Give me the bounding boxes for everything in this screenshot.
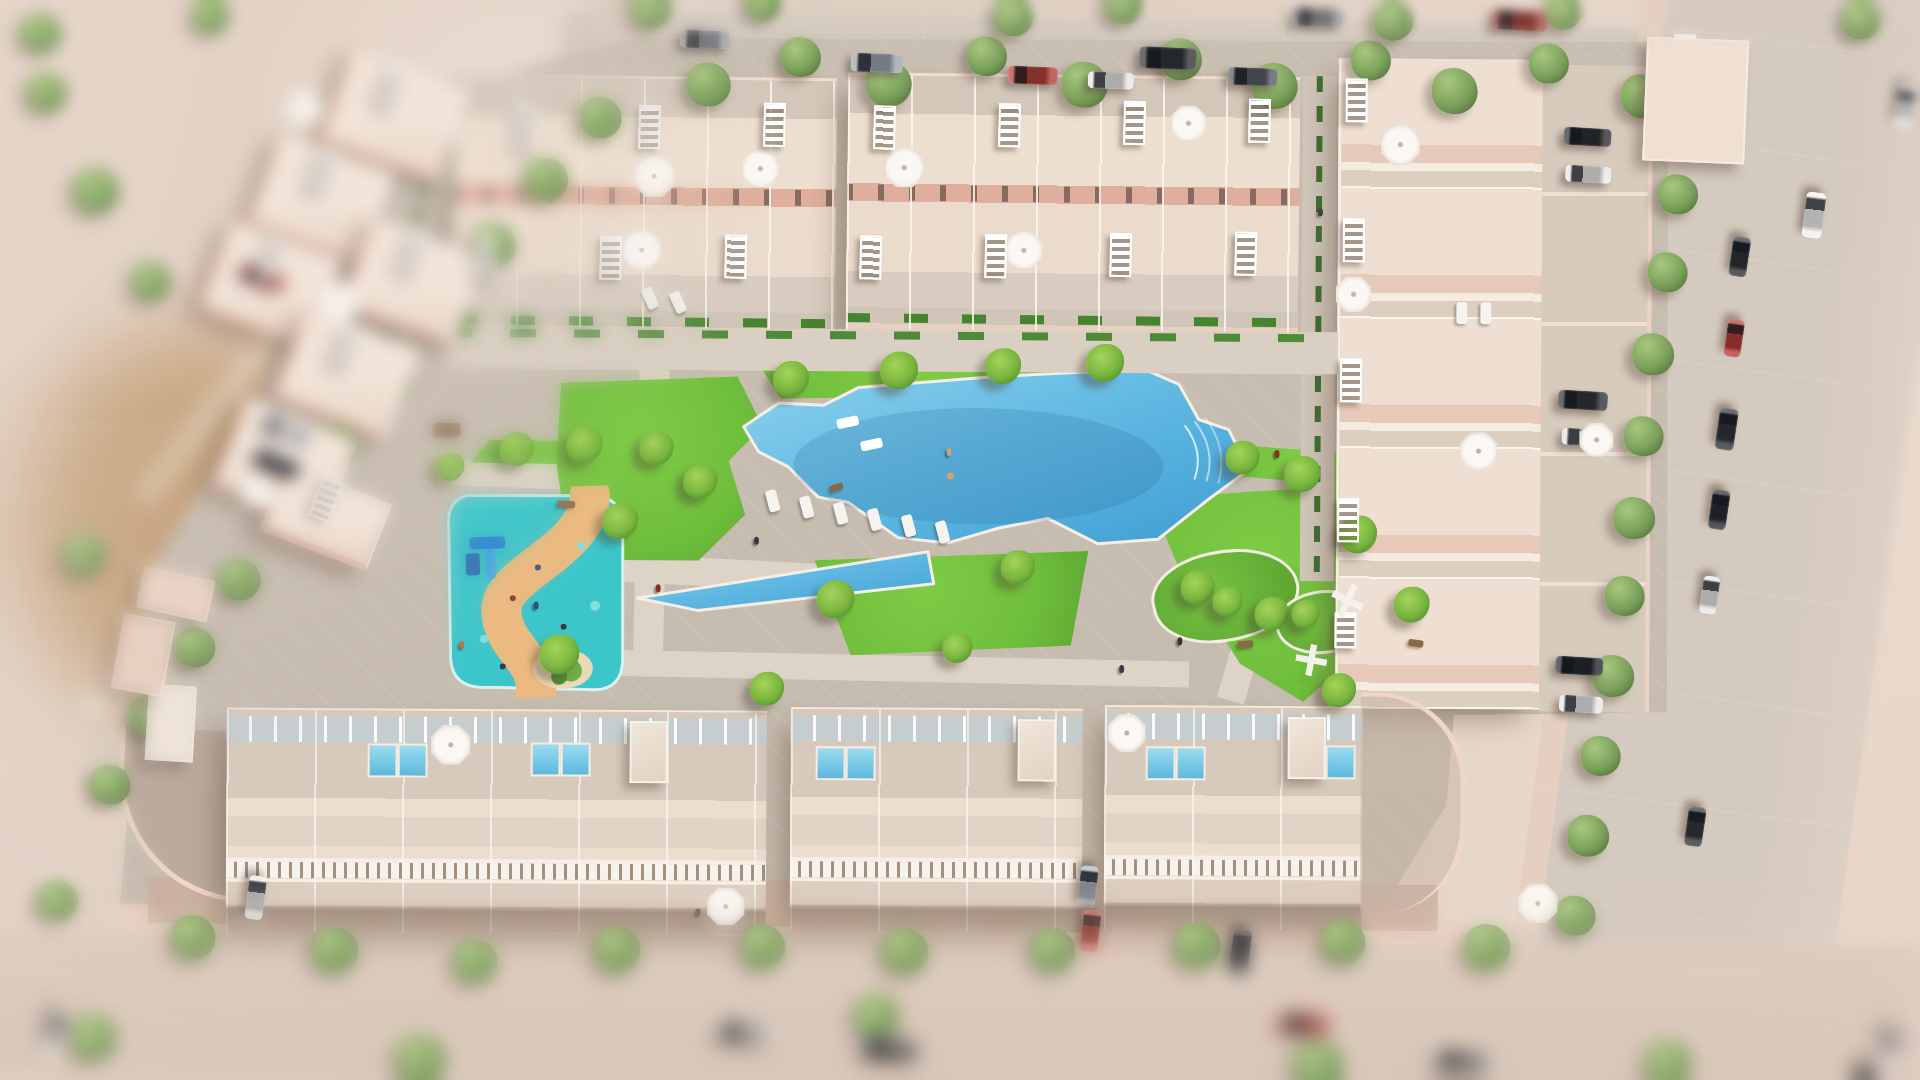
plunge-pool [398,744,428,778]
tree-icon [1373,1,1413,41]
plunge-pool [1326,745,1356,779]
roof-stairs [1334,612,1356,648]
car [1555,655,1604,676]
tree-icon [131,261,171,301]
bottom-street [0,934,1918,1080]
plunge-pool [561,743,591,777]
car [1559,694,1604,714]
tree-icon [1464,924,1510,970]
pedestrian [459,641,464,649]
stair-tower [630,721,668,783]
car [1007,65,1058,85]
tree-icon [1174,922,1220,968]
pedestrian [534,601,539,609]
roof-stairs [984,234,1007,279]
roof-stairs [1234,231,1257,276]
sun-lounger [1456,302,1467,324]
roof-stairs [1340,358,1362,402]
roof-stairs [1123,101,1146,146]
plunge-pool [1176,746,1206,780]
tree-icon [1432,68,1478,114]
roof-stairs [474,237,497,282]
tree-icon [90,765,130,805]
car [1291,8,1343,27]
tree-icon [27,72,67,112]
tree-icon [524,157,568,201]
plunge-pool [816,746,846,780]
roof-stairs [1346,78,1368,122]
tree-icon [73,168,119,214]
tree-icon [219,558,261,600]
tree-icon [1605,576,1645,616]
tree-icon [1351,40,1391,80]
pedestrian [696,908,701,916]
tree-icon [21,12,61,52]
car [1227,67,1278,87]
roof-stairs [599,236,622,281]
stair-tower [1288,717,1326,779]
pedestrian [1119,665,1124,673]
tree-icon [171,915,215,959]
pedestrian [947,448,952,456]
bench [1237,639,1254,648]
roof-stairs [1337,498,1359,542]
car [851,52,904,73]
tree-icon [453,939,497,983]
tree-icon [1841,0,1881,40]
roof-stairs [638,105,661,150]
tree-icon [781,37,821,77]
car [1087,70,1134,89]
roof-stairs [763,103,786,148]
pedestrian [1275,450,1280,458]
tree-icon [993,0,1033,36]
tree-icon [594,927,640,973]
pedestrian [754,537,759,545]
roof-stairs [859,235,882,280]
roof-stairs [1343,218,1365,262]
tree-icon [1567,815,1609,857]
townhouse-block-north-b [846,72,1301,335]
car [860,1037,921,1062]
car [715,1020,774,1045]
tree-icon [687,62,731,106]
car [1491,9,1548,32]
east-driveways [1539,66,1653,713]
tree-icon [1658,174,1698,214]
tree-icon [1581,736,1621,776]
sun-lounger [1480,302,1491,324]
tree-icon [69,1013,117,1061]
car [1557,389,1608,411]
utility-structure [1642,36,1749,164]
tree-icon [175,627,215,667]
roof-stairs [724,234,747,279]
tree-icon [1321,920,1365,964]
tree-icon [1529,43,1569,83]
utility-structure [145,684,197,763]
bench [1407,638,1423,647]
car [1563,126,1612,147]
villa-column-east [1335,58,1546,709]
tree-icon [579,97,621,139]
tree-icon [741,925,785,969]
hedge-alley [1300,76,1337,581]
tree-icon [1624,416,1664,456]
tree-icon [396,1034,446,1080]
roof-stairs [998,103,1021,148]
plunge-pool [368,743,398,777]
plunge-pool [531,742,561,776]
tree-icon [38,880,78,920]
tree-icon [1031,928,1075,972]
tree-icon [62,533,106,577]
tree-icon [882,929,928,975]
pedestrian [656,584,661,592]
roof-stairs [873,105,896,150]
roof-stairs [513,107,536,152]
stair-tower [1018,719,1056,781]
tree-icon [1613,497,1655,539]
roof-stairs [1248,99,1271,144]
townhouse-block-south-a [226,708,767,935]
tree-icon [967,36,1007,76]
pedestrian [1177,637,1182,645]
tree-icon [312,927,358,973]
tree-icon [854,992,900,1038]
tree-icon [193,0,229,34]
car [1434,1049,1491,1072]
car [1139,46,1198,70]
roof-stairs [1109,233,1132,278]
bench [435,422,461,435]
plunge-pool [846,746,876,780]
scene-world [0,0,1920,1080]
pedestrian [1318,208,1323,216]
aerial-development-render [0,0,1920,1080]
bench [557,500,575,508]
tree-icon [1648,252,1688,292]
tree-icon [1632,333,1674,375]
car [1565,164,1612,184]
car [680,29,731,49]
plunge-pool [1146,746,1176,780]
car [1279,1013,1332,1036]
tree-icon [1556,896,1596,936]
